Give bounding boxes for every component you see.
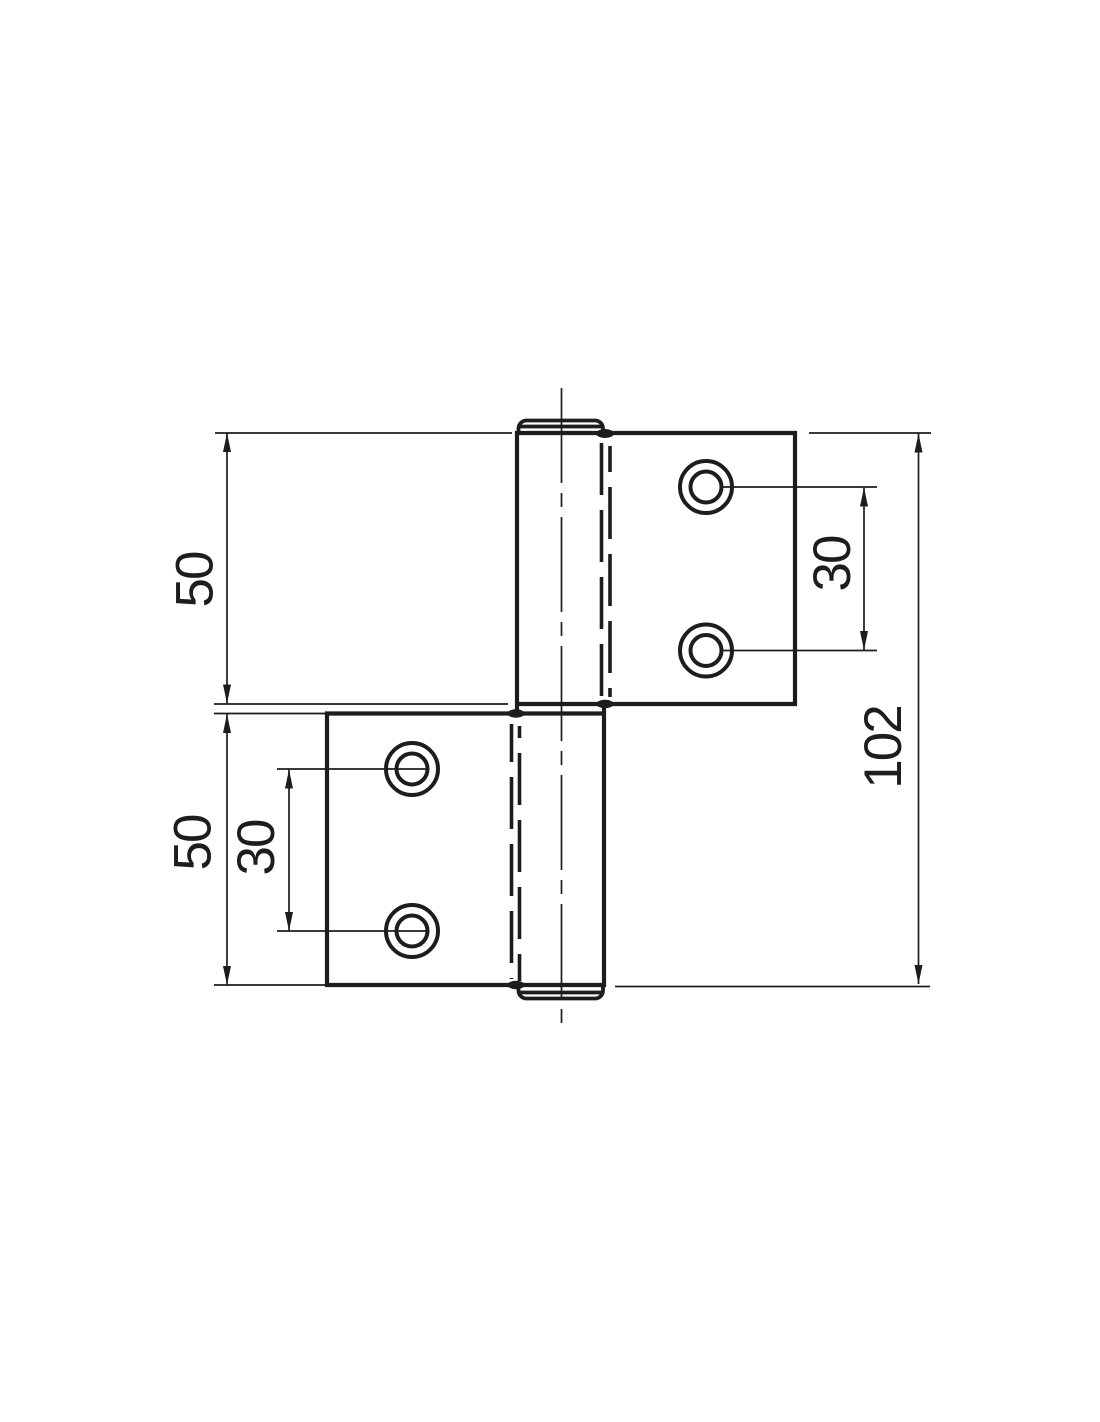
- extension-lines: [214, 433, 931, 987]
- dimension-lines: [227, 433, 919, 985]
- dim-label-overall-102: 102: [854, 706, 913, 788]
- arrow-bot30-up: [285, 770, 293, 789]
- junction-dot-mid-lower: [508, 709, 525, 717]
- top-leaf-hole-upper-inner: [691, 472, 722, 503]
- arrow-bot30-down: [285, 912, 293, 931]
- top-leaf-outline: [517, 433, 795, 714]
- hinge-drawing: 50 50 30 30 102: [0, 0, 1100, 1422]
- dim-label-top-hole-30: 30: [803, 536, 862, 591]
- arrow-top50-down: [223, 685, 231, 704]
- dim-label-bottom-hole-30: 30: [227, 820, 286, 875]
- dim-label-top-leaf-50: 50: [166, 552, 225, 607]
- arrow-102-up: [915, 434, 923, 453]
- arrow-102-down: [915, 965, 923, 984]
- junction-dot-mid-upper: [597, 700, 614, 708]
- dim-label-bottom-leaf-50: 50: [164, 815, 223, 870]
- arrow-top50-up: [223, 433, 231, 452]
- technical-drawing-canvas: 50 50 30 30 102: [0, 0, 1100, 1422]
- junction-dot-top-cap: [596, 429, 614, 438]
- arrow-bot50-up: [223, 714, 231, 733]
- arrow-top30-up: [860, 488, 868, 507]
- screw-holes: [386, 461, 732, 957]
- top-leaf-hole-lower-inner: [691, 635, 722, 666]
- arrow-bot50-down: [223, 966, 231, 985]
- junction-dot-bottom-cap: [508, 981, 525, 989]
- bottom-leaf-outline: [327, 704, 604, 985]
- arrow-top30-down: [860, 631, 868, 650]
